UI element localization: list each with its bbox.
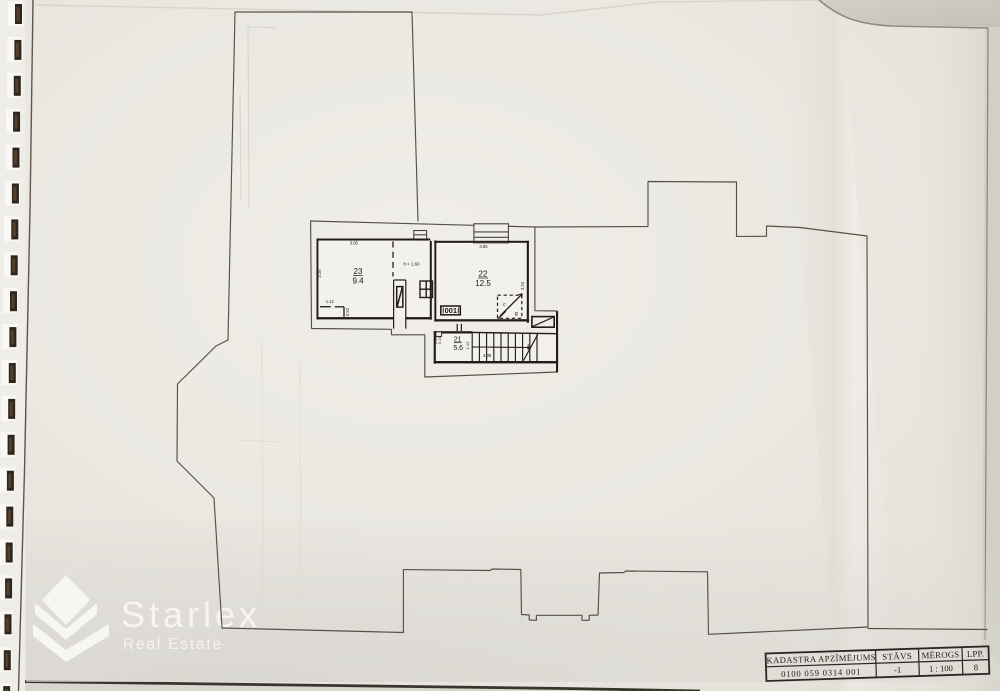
svg-text:1 : 100: 1 : 100 — [929, 663, 953, 674]
svg-text:3.85: 3.85 — [479, 244, 488, 249]
svg-text:12.5: 12.5 — [475, 279, 491, 288]
svg-text:LPP.: LPP. — [967, 648, 985, 659]
svg-text:-1: -1 — [894, 665, 901, 675]
svg-text:c: c — [503, 302, 506, 308]
svg-text:0.60: 0.60 — [434, 337, 438, 344]
svg-text:0.52: 0.52 — [345, 307, 350, 316]
svg-text:001: 001 — [445, 306, 457, 315]
svg-text:0.13: 0.13 — [438, 337, 442, 344]
svg-text:23: 23 — [354, 267, 363, 276]
svg-text:4.38: 4.38 — [483, 353, 492, 358]
svg-text:5.6: 5.6 — [453, 345, 463, 352]
svg-text:3.26: 3.26 — [317, 269, 322, 278]
svg-text:STĀVS: STĀVS — [882, 651, 912, 662]
svg-text:1.12: 1.12 — [326, 299, 335, 304]
svg-text:3.24: 3.24 — [520, 281, 525, 290]
svg-text:9.4: 9.4 — [352, 277, 364, 286]
svg-text:1.12: 1.12 — [465, 341, 470, 350]
svg-text:22: 22 — [479, 270, 488, 279]
svg-text:Real Estate: Real Estate — [123, 636, 223, 653]
svg-text:8: 8 — [974, 662, 979, 672]
svg-text:3.05: 3.05 — [350, 241, 359, 246]
svg-text:g: g — [515, 311, 518, 317]
svg-text:h < 1.60: h < 1.60 — [404, 262, 421, 267]
svg-text:MĒROGS: MĒROGS — [921, 649, 959, 660]
